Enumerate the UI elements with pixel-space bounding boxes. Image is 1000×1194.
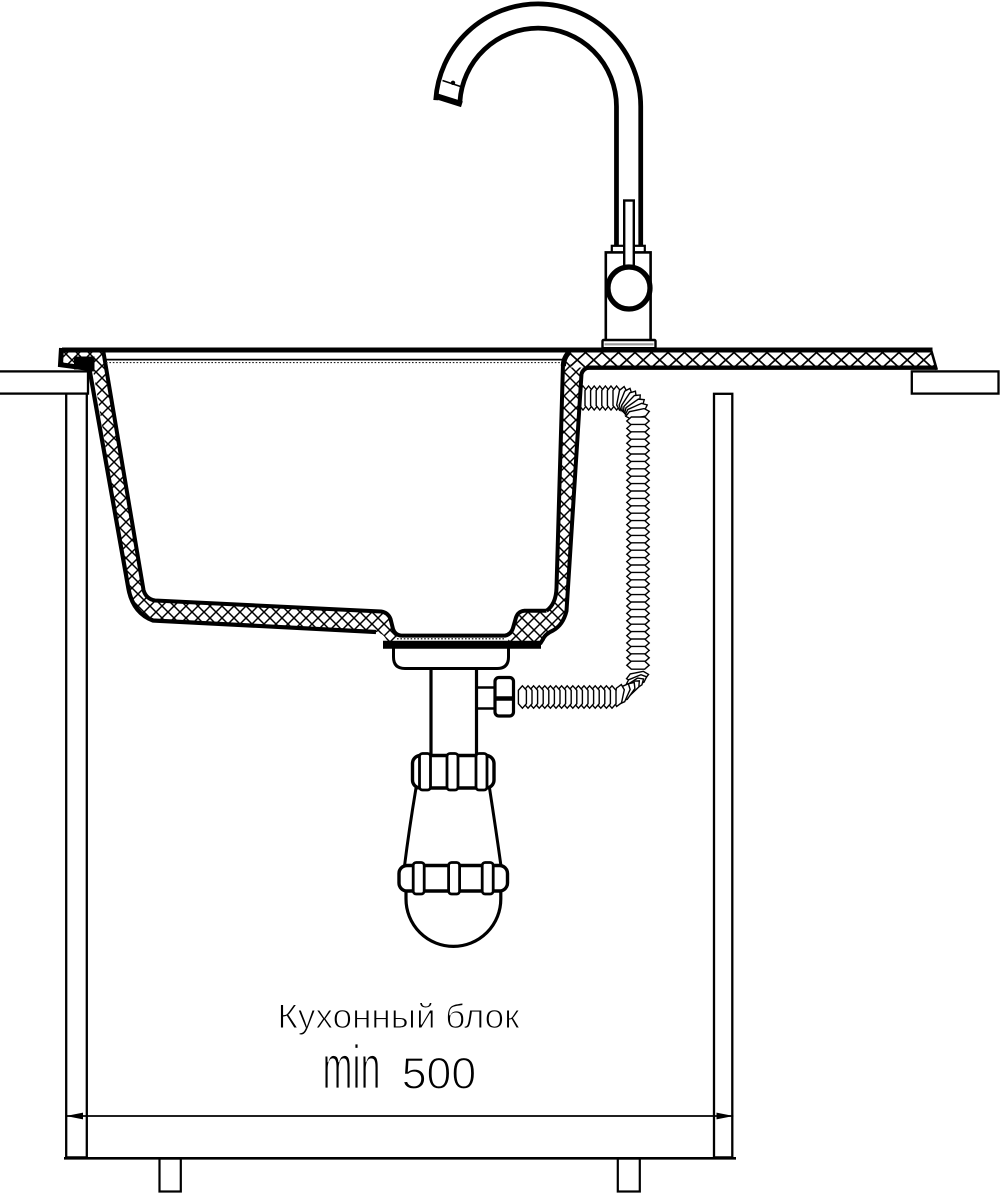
- svg-text:500: 500: [402, 1048, 477, 1098]
- svg-text:min: min: [323, 1033, 381, 1102]
- svg-text:Кухонный блок: Кухонный блок: [278, 998, 521, 1036]
